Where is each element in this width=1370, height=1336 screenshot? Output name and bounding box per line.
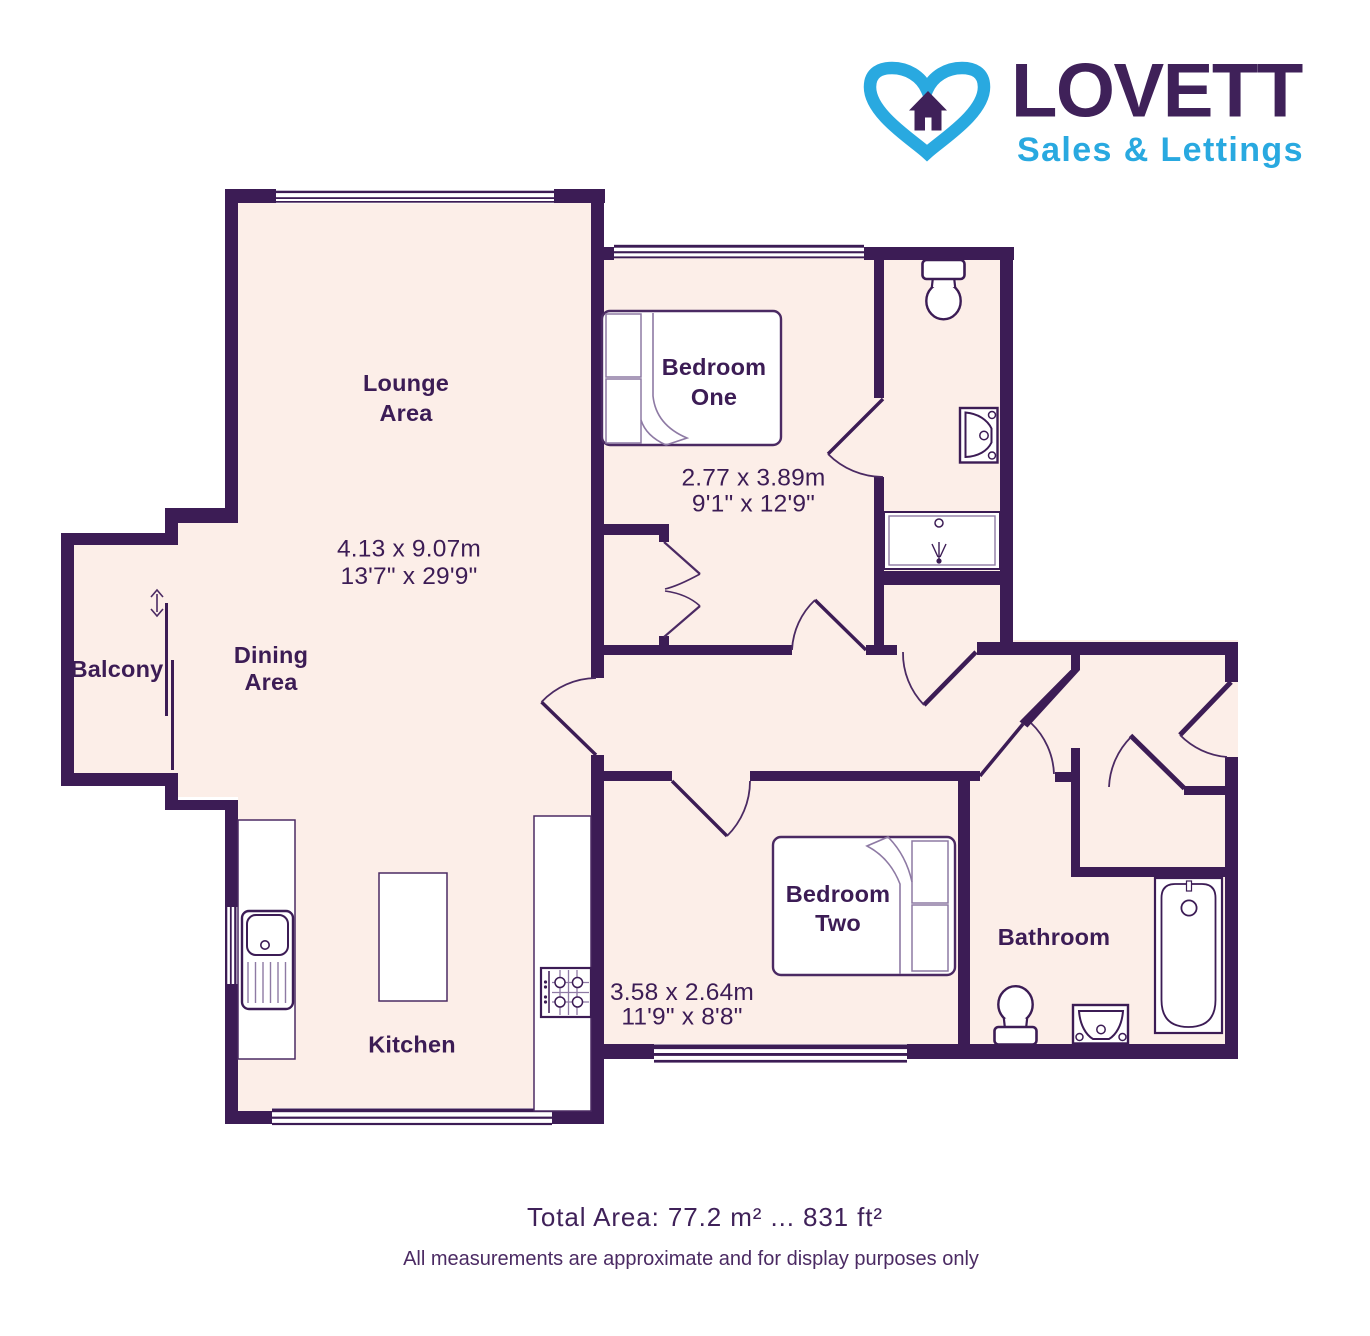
svg-text:Lounge: Lounge [363, 370, 449, 396]
svg-text:Total Area: 77.2 m² ... 831 ft: Total Area: 77.2 m² ... 831 ft² [527, 1202, 883, 1232]
svg-text:4.13 x 9.07m: 4.13 x 9.07m [337, 536, 481, 563]
svg-text:Two: Two [815, 910, 861, 936]
svg-text:Bedroom: Bedroom [662, 354, 767, 380]
svg-text:Sales & Lettings: Sales & Lettings [1017, 131, 1304, 169]
svg-text:Dining: Dining [234, 642, 308, 668]
svg-text:Bedroom: Bedroom [786, 881, 891, 907]
svg-text:Area: Area [244, 669, 298, 695]
svg-text:All measurements are approxima: All measurements are approximate and for… [403, 1248, 979, 1270]
svg-text:3.58 x 2.64m: 3.58 x 2.64m [610, 979, 754, 1006]
svg-text:Area: Area [379, 400, 433, 426]
svg-text:9'1" x 12'9": 9'1" x 12'9" [692, 491, 815, 518]
svg-text:11'9" x 8'8": 11'9" x 8'8" [621, 1004, 742, 1031]
svg-text:2.77 x 3.89m: 2.77 x 3.89m [681, 465, 825, 492]
svg-text:13'7" x 29'9": 13'7" x 29'9" [341, 563, 478, 590]
svg-text:Bathroom: Bathroom [998, 924, 1111, 950]
svg-text:LOVETT: LOVETT [1011, 49, 1303, 134]
svg-text:One: One [691, 384, 737, 410]
svg-text:Balcony: Balcony [71, 656, 164, 682]
svg-text:Kitchen: Kitchen [368, 1032, 456, 1058]
